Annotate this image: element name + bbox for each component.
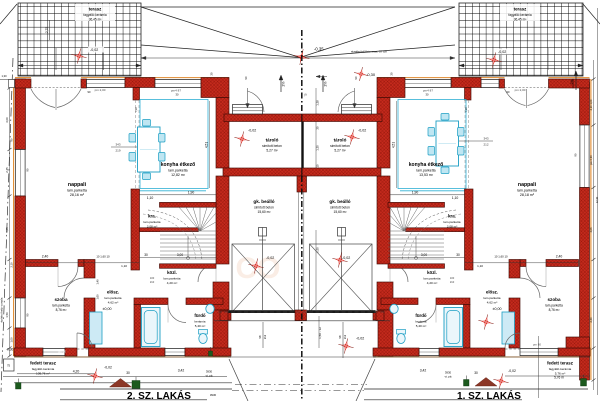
svg-text:36,45 m²: 36,45 m²: [514, 18, 527, 22]
svg-text:fagyálló kerámia: fagyálló kerámia: [549, 367, 572, 371]
svg-text:fedett terasz: fedett terasz: [547, 361, 574, 366]
svg-text:fagyálló kerámia: fagyálló kerámia: [32, 367, 55, 371]
svg-text:4,62 m²: 4,62 m²: [108, 301, 119, 305]
svg-text:-0,02: -0,02: [498, 50, 506, 54]
svg-text:vt. pá: vt. pá: [445, 375, 452, 379]
svg-text:15,60 m²: 15,60 m²: [257, 210, 271, 214]
svg-text:lam.parketta: lam.parketta: [163, 276, 180, 280]
svg-text:3,08 m²: 3,08 m²: [447, 225, 458, 229]
svg-text:2%: 2%: [282, 82, 286, 87]
svg-text:1,10: 1,10: [452, 196, 459, 200]
svg-text:5,27 m²: 5,27 m²: [266, 149, 278, 153]
svg-text:5,05: 5,05: [5, 227, 9, 233]
svg-text:30: 30: [210, 72, 214, 76]
svg-text:gk. beálló: gk. beálló: [329, 199, 350, 204]
svg-text:1,10: 1,10: [121, 264, 127, 268]
svg-text:13,53 m²: 13,53 m²: [419, 173, 434, 177]
svg-text:8,76 m²: 8,76 m²: [56, 308, 67, 312]
svg-text:4,20 m²: 4,20 m²: [427, 281, 438, 285]
svg-text:1,30: 1,30: [316, 145, 320, 151]
svg-text:1,90: 1,90: [412, 191, 419, 195]
svg-text:30: 30: [144, 253, 148, 257]
svg-text:tároló: tároló: [266, 138, 279, 143]
svg-text:1,50 - 12: 1,50 - 12: [318, 327, 322, 339]
svg-text:pm 80: pm 80: [58, 350, 66, 354]
svg-text:2,40: 2,40: [556, 255, 563, 259]
svg-text:szoba: szoba: [54, 297, 67, 302]
svg-text:30: 30: [126, 371, 130, 375]
svg-text:lam.parketta: lam.parketta: [143, 220, 160, 224]
svg-text:közl.: közl.: [427, 270, 437, 275]
svg-text:fedett terasz: fedett terasz: [30, 361, 57, 366]
svg-text:lam.parketta: lam.parketta: [52, 303, 70, 307]
svg-text:3,42: 3,42: [420, 369, 427, 373]
svg-text:építési hely vonala: építési hely vonala: [0, 297, 4, 322]
svg-text:4,51: 4,51: [205, 142, 209, 148]
svg-text:12,82 m²: 12,82 m²: [171, 173, 186, 177]
svg-text:-0,02: -0,02: [358, 129, 366, 133]
svg-text:2,40: 2,40: [589, 317, 593, 323]
svg-text:212: 212: [343, 334, 347, 339]
svg-text:212: 212: [263, 334, 267, 339]
svg-text:10: 10: [316, 164, 320, 168]
svg-text:szoba: szoba: [547, 297, 560, 302]
svg-text:5,40 m²: 5,40 m²: [416, 324, 427, 328]
svg-text:1,10: 1,10: [477, 264, 483, 268]
svg-text:elősz.: elősz.: [107, 290, 119, 295]
svg-text:konyha étkező: konyha étkező: [161, 162, 195, 168]
svg-text:12,40: 12,40: [595, 196, 599, 203]
svg-text:30: 30: [474, 371, 478, 375]
svg-text:3,42: 3,42: [178, 369, 185, 373]
svg-text:lam.parketta: lam.parketta: [517, 188, 537, 192]
svg-text:2%: 2%: [324, 82, 328, 87]
svg-text:210: 210: [150, 280, 155, 284]
svg-text:4,20: 4,20: [73, 369, 80, 373]
svg-text:4,62 m²: 4,62 m²: [487, 301, 498, 305]
svg-text:-0,35: -0,35: [314, 47, 324, 52]
svg-text:100: 100: [150, 276, 155, 280]
svg-text:2%: 2%: [570, 80, 574, 85]
svg-text:2,40: 2,40: [42, 255, 49, 259]
svg-text:tároló: tároló: [334, 138, 347, 143]
svg-text:1,40: 1,40: [96, 279, 100, 285]
svg-text:fürdő: fürdő: [415, 313, 427, 318]
svg-text:kerámia: kerámia: [415, 319, 426, 323]
svg-text:gk. beálló: gk. beálló: [253, 199, 274, 204]
svg-text:nappali: nappali: [68, 182, 87, 188]
svg-text:terasz: terasz: [89, 7, 102, 12]
svg-text:-0,02: -0,02: [248, 129, 256, 133]
svg-text:közl.: közl.: [167, 270, 177, 275]
svg-text:terasz: terasz: [514, 7, 527, 12]
svg-text:7,19: 7,19: [134, 107, 138, 113]
svg-text:simított beton: simított beton: [262, 144, 282, 148]
svg-text:pm 80: pm 80: [533, 343, 541, 347]
svg-text:kra.: kra.: [148, 214, 156, 219]
svg-text:343: 343: [115, 143, 120, 147]
svg-text:lam.parketta: lam.parketta: [104, 296, 121, 300]
svg-text:3,08 m²: 3,08 m²: [147, 225, 158, 229]
svg-text:4,51: 4,51: [392, 142, 396, 148]
svg-text:-0,02: -0,02: [90, 48, 98, 52]
svg-text:3930: 3930: [210, 393, 217, 397]
svg-text:pm4 87: pm4 87: [423, 89, 433, 93]
svg-text:75: 75: [7, 364, 11, 368]
svg-text:lam.parketta: lam.parketta: [545, 303, 563, 307]
svg-text:28,18 m²: 28,18 m²: [520, 193, 535, 197]
svg-text:30: 30: [390, 72, 394, 76]
svg-text:1,50: 1,50: [5, 312, 9, 318]
svg-text:fagyálló kerámia: fagyálló kerámia: [508, 13, 531, 17]
svg-text:36,45 m²: 36,45 m²: [89, 18, 102, 22]
svg-text:lam.parketta: lam.parketta: [443, 220, 460, 224]
svg-text:10 1,60 10: 10 1,60 10: [494, 255, 508, 259]
svg-text:2,25: 2,25: [5, 167, 9, 173]
svg-text:212: 212: [483, 143, 488, 147]
svg-text:±0,00: ±0,00: [103, 307, 112, 311]
svg-text:±0,00: ±0,00: [493, 307, 502, 311]
svg-text:7,19: 7,19: [464, 107, 468, 113]
svg-text:6,50: 6,50: [316, 247, 320, 253]
svg-text:15,60 m²: 15,60 m²: [333, 210, 347, 214]
svg-text:rézalja felüllete max. 37 cm: rézalja felüllete max. 37 cm: [351, 50, 388, 54]
svg-text:kerámia: kerámia: [194, 319, 205, 323]
svg-text:nappali: nappali: [518, 182, 537, 188]
svg-text:lam.parketta: lam.parketta: [423, 276, 440, 280]
svg-text:elősz.: elősz.: [486, 290, 498, 295]
svg-text:1,30: 1,30: [1, 74, 7, 78]
svg-text:pm 0,90: pm 0,90: [589, 155, 593, 165]
svg-text:lam.parketta: lam.parketta: [67, 188, 87, 192]
svg-text:simított beton: simított beton: [330, 144, 350, 148]
svg-text:1. SZ. LAKÁS: 1. SZ. LAKÁS: [457, 389, 521, 401]
svg-text:-0,02: -0,02: [104, 366, 112, 370]
svg-text:1,90: 1,90: [188, 191, 195, 195]
svg-text:4,20 m²: 4,20 m²: [167, 281, 178, 285]
svg-text:219: 219: [115, 149, 120, 153]
svg-text:5,27 m²: 5,27 m²: [334, 149, 346, 153]
svg-text:2,10: 2,10: [10, 262, 14, 268]
svg-text:3,00: 3,00: [421, 253, 427, 257]
svg-text:4,05: 4,05: [589, 227, 593, 233]
svg-text:konyha étkező: konyha étkező: [409, 162, 443, 168]
svg-text:3,00: 3,00: [177, 253, 183, 257]
svg-text:simított beton: simított beton: [254, 205, 274, 209]
svg-text:simított beton: simított beton: [330, 205, 350, 209]
svg-text:fagyálló kerámia: fagyálló kerámia: [83, 13, 106, 17]
svg-text:-0,30: -0,30: [366, 72, 376, 77]
svg-text:30: 30: [316, 126, 320, 130]
svg-text:-0,02: -0,02: [508, 369, 516, 373]
svg-text:kra.: kra.: [448, 214, 456, 219]
svg-text:343: 343: [483, 137, 488, 141]
svg-text:1,10: 1,10: [147, 196, 154, 200]
svg-text:8,76 m²: 8,76 m²: [549, 308, 560, 312]
svg-text:vt. pá: vt. pá: [206, 374, 213, 378]
svg-text:pm 2,00: pm 2,00: [515, 88, 526, 92]
svg-text:2,10 1,00: 2,10 1,00: [589, 99, 593, 110]
svg-text:pm 2,00: pm 2,00: [95, 88, 106, 92]
svg-text:lam.parketta: lam.parketta: [416, 168, 435, 172]
svg-text:1,00: 1,00: [10, 337, 14, 343]
svg-text:2. SZ. LAKÁS: 2. SZ. LAKÁS: [127, 389, 191, 401]
svg-text:210: 210: [450, 280, 455, 284]
svg-text:-0,02: -0,02: [266, 256, 274, 260]
svg-text:1,38: 1,38: [316, 100, 320, 106]
svg-text:-0,02: -0,02: [342, 256, 350, 260]
svg-text:pm4 87: pm4 87: [171, 89, 181, 93]
svg-text:fürdő: fürdő: [194, 313, 206, 318]
svg-text:lam.parketta: lam.parketta: [483, 296, 500, 300]
svg-text:3,00: 3,00: [5, 117, 9, 123]
svg-text:100: 100: [450, 276, 455, 280]
svg-text:30: 30: [456, 253, 460, 257]
svg-text:10 1,60 10: 10 1,60 10: [96, 255, 110, 259]
svg-text:lam.parketta: lam.parketta: [168, 168, 187, 172]
svg-text:5,76 m: 5,76 m: [554, 376, 564, 380]
svg-text:28,16 m²: 28,16 m²: [70, 193, 85, 197]
svg-text:5,40 m²: 5,40 m²: [195, 324, 206, 328]
svg-text:1,60: 1,60: [96, 294, 100, 300]
svg-text:-0,02: -0,02: [356, 337, 364, 341]
svg-text:2,75: 2,75: [45, 27, 49, 33]
